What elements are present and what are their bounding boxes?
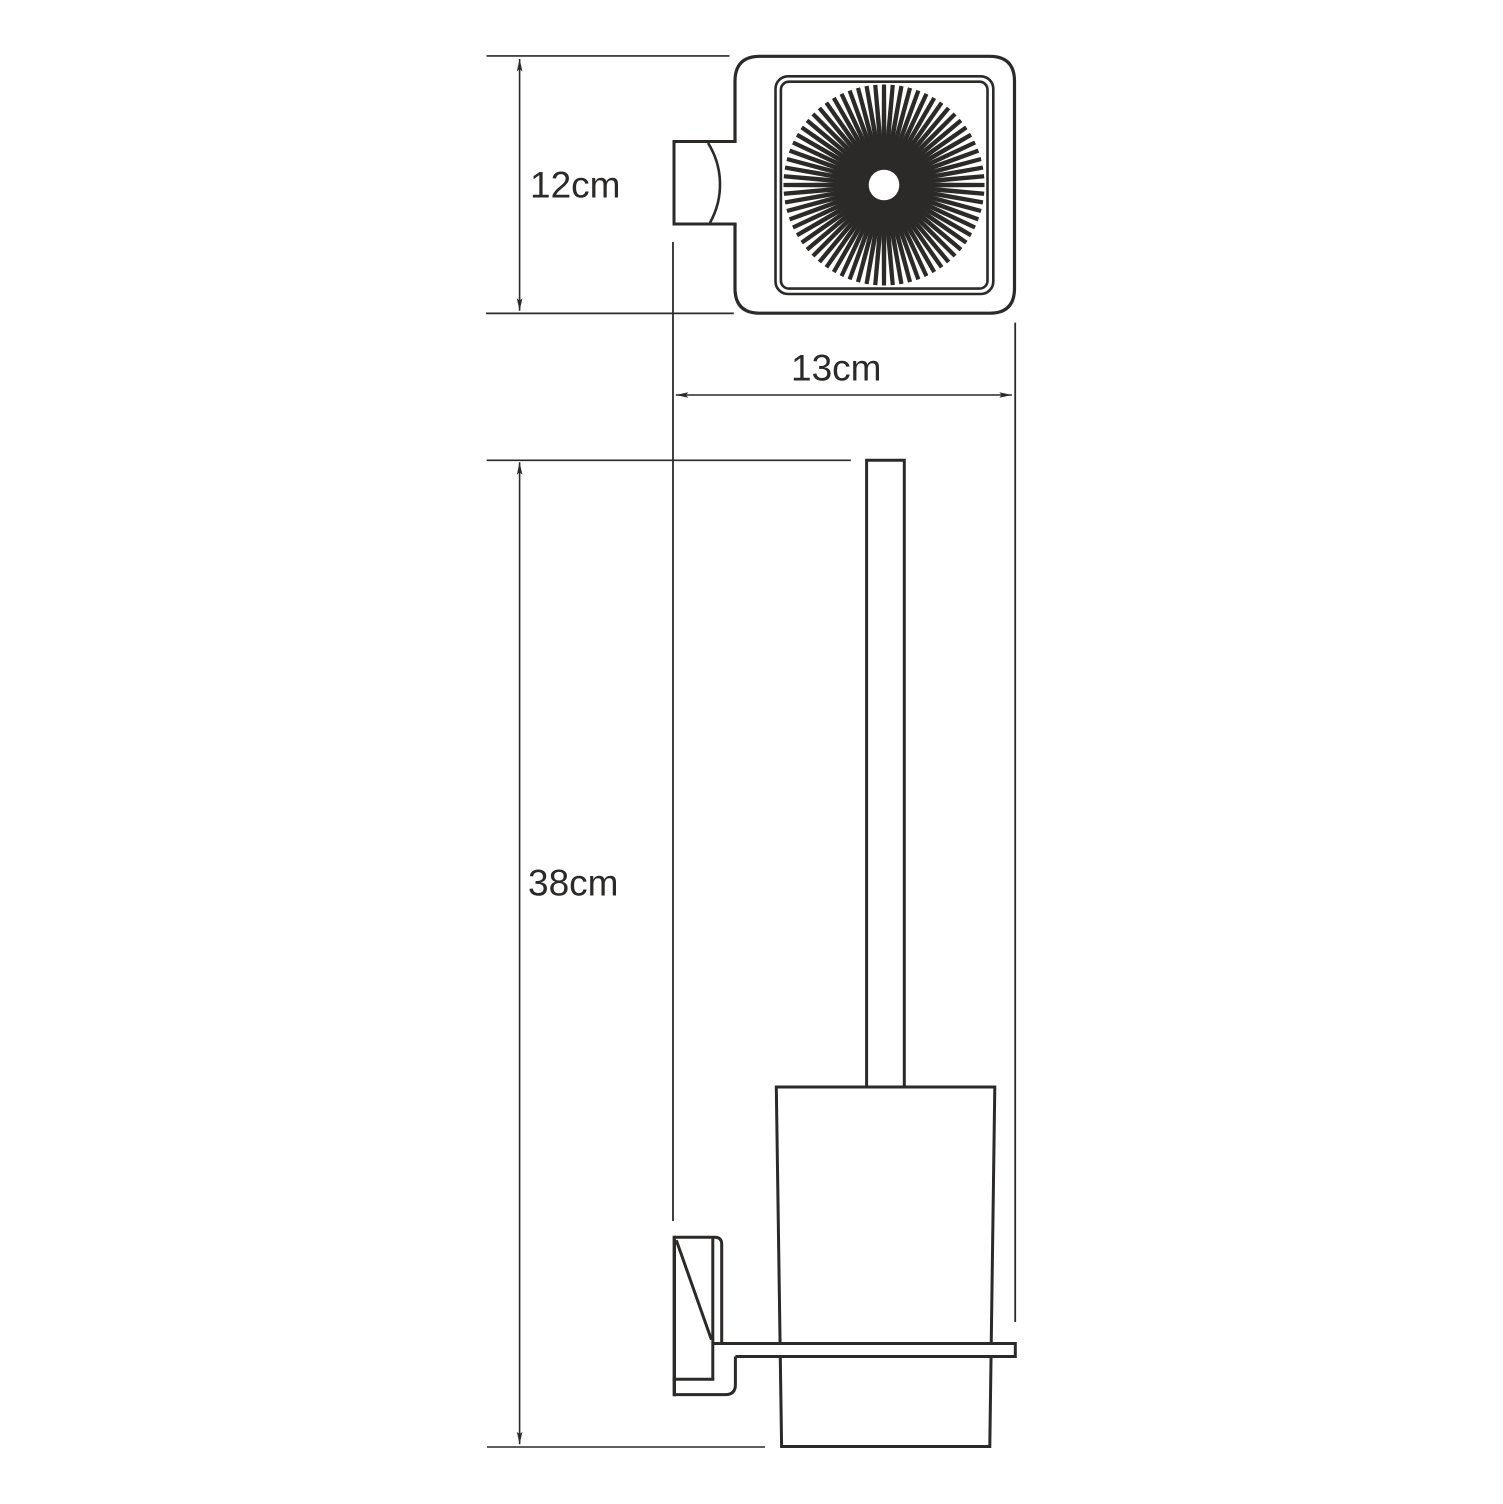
svg-text:12cm: 12cm bbox=[530, 165, 620, 206]
svg-text:13cm: 13cm bbox=[791, 348, 881, 389]
svg-text:38cm: 38cm bbox=[528, 863, 618, 904]
